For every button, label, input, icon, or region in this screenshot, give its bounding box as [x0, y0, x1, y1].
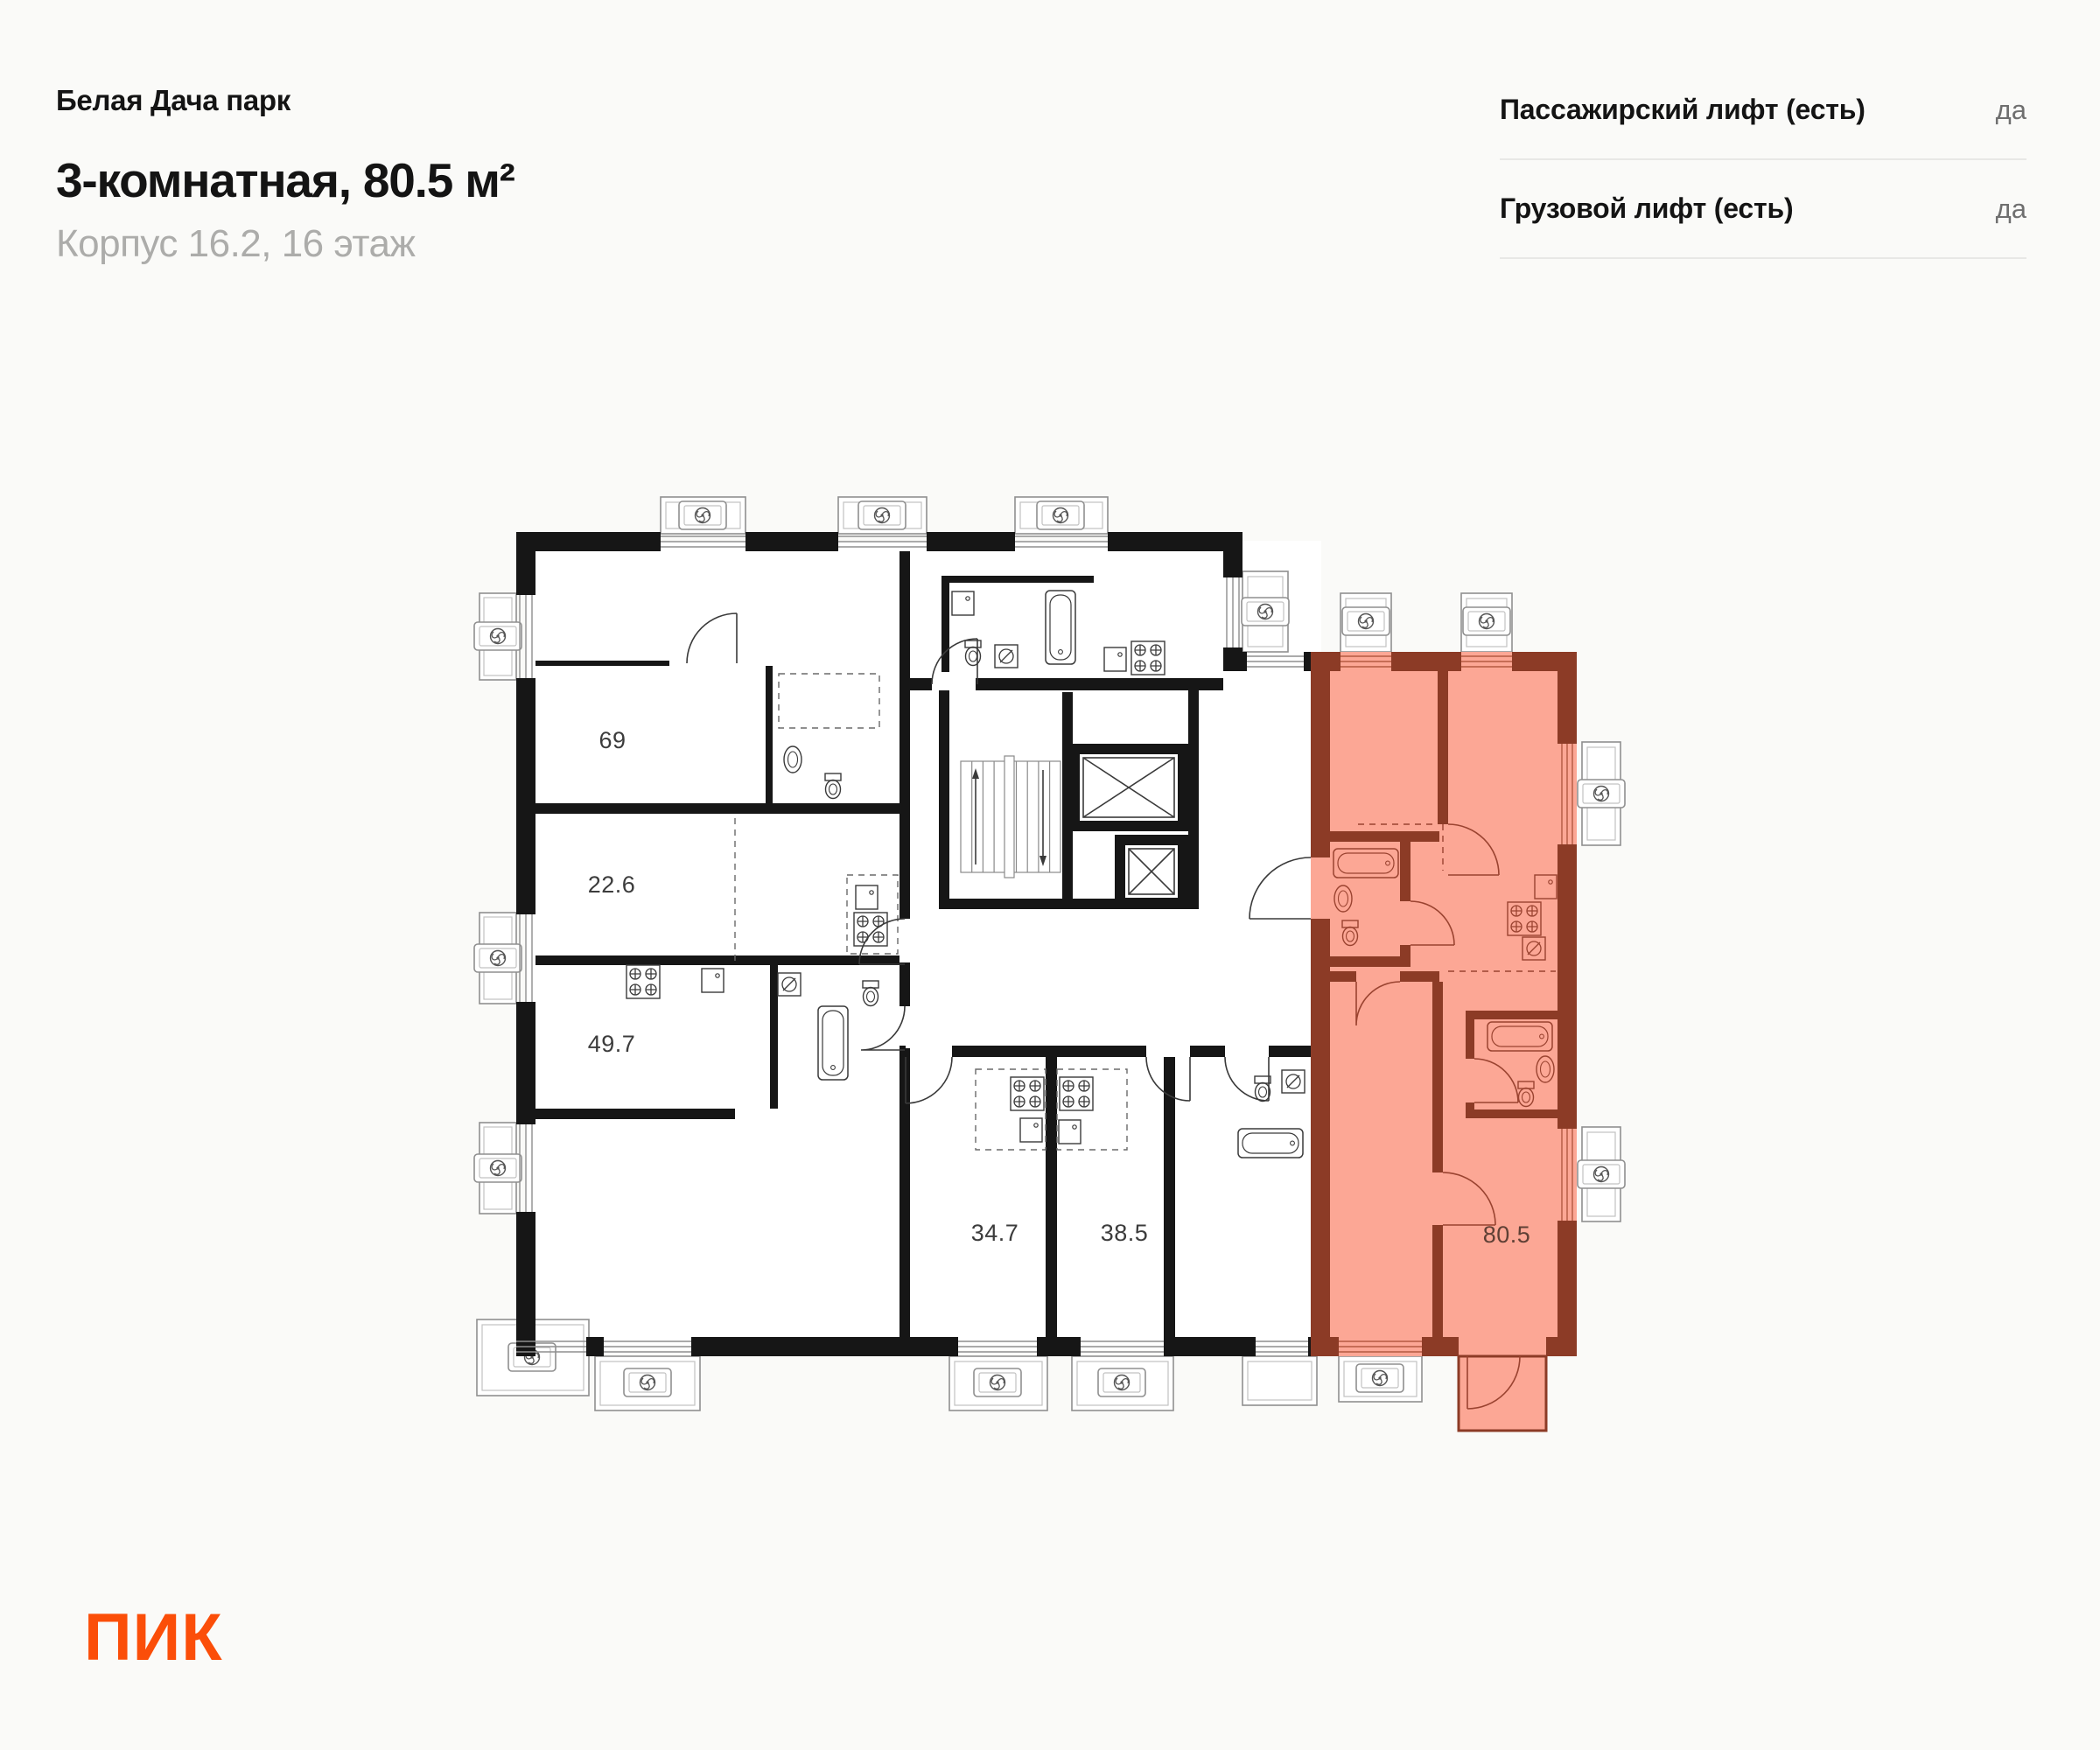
- selected-unit-area-label: 80.5: [1483, 1221, 1531, 1248]
- info-value: да: [1996, 94, 2026, 126]
- page-subtitle: Корпус 16.2, 16 этаж: [56, 222, 514, 266]
- page-title: 3-комнатная, 80.5 м²: [56, 152, 514, 208]
- unit-area-label: 38.5: [1101, 1220, 1149, 1246]
- unit-area-label: 22.6: [588, 871, 636, 898]
- unit-area-label: 49.7: [588, 1031, 636, 1057]
- pik-logo[interactable]: ПИК: [84, 1599, 223, 1676]
- floor-plan: 69 22.6 49.7 34.7 38.5 80.5: [472, 481, 1662, 1444]
- lift-info-panel: Пассажирский лифт (есть) да Грузовой лиф…: [1500, 61, 2026, 259]
- info-value: да: [1996, 193, 2026, 225]
- info-label: Грузовой лифт (есть): [1500, 192, 1793, 225]
- page-header: Белая Дача парк 3-комнатная, 80.5 м² Кор…: [56, 84, 514, 266]
- info-label: Пассажирский лифт (есть): [1500, 94, 1865, 126]
- selected-apartment-loggia: [1459, 1356, 1546, 1431]
- unit-area-label: 69: [598, 727, 626, 753]
- project-name: Белая Дача парк: [56, 84, 514, 117]
- unit-area-label: 34.7: [971, 1220, 1019, 1246]
- info-row-cargo-lift: Грузовой лифт (есть) да: [1500, 160, 2026, 259]
- info-row-passenger-lift: Пассажирский лифт (есть) да: [1500, 61, 2026, 160]
